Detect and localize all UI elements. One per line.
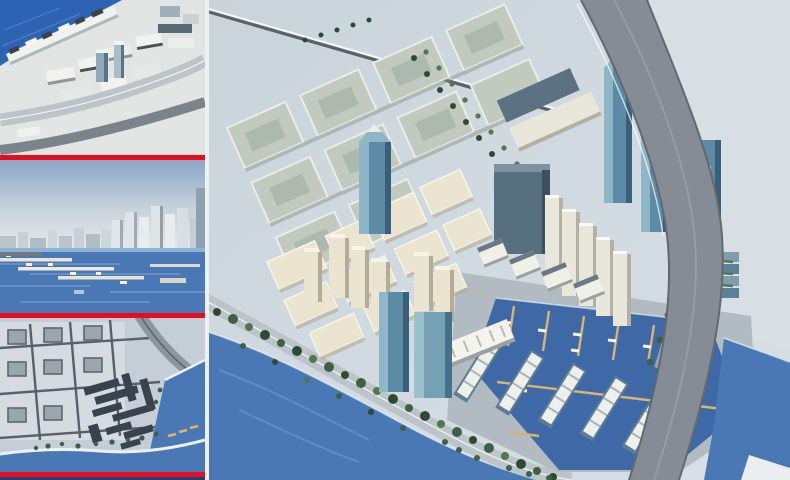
divider-line-2 xyxy=(0,313,205,318)
aerial-model-scene xyxy=(0,0,205,155)
main-render xyxy=(209,0,790,480)
glass-tower-central xyxy=(359,124,391,234)
thumbnail-waterfront-view xyxy=(0,160,205,313)
waterfront-scene xyxy=(0,160,205,313)
site-plan-scene xyxy=(0,318,205,472)
thumbnail-aerial-model xyxy=(0,0,205,155)
thumbnail-site-plan xyxy=(0,318,205,472)
collage-root xyxy=(0,0,790,480)
panel-separator xyxy=(205,0,209,480)
masterplan-scene xyxy=(209,0,790,480)
glass-slab-block xyxy=(494,164,550,254)
divider-line-1 xyxy=(0,155,205,160)
